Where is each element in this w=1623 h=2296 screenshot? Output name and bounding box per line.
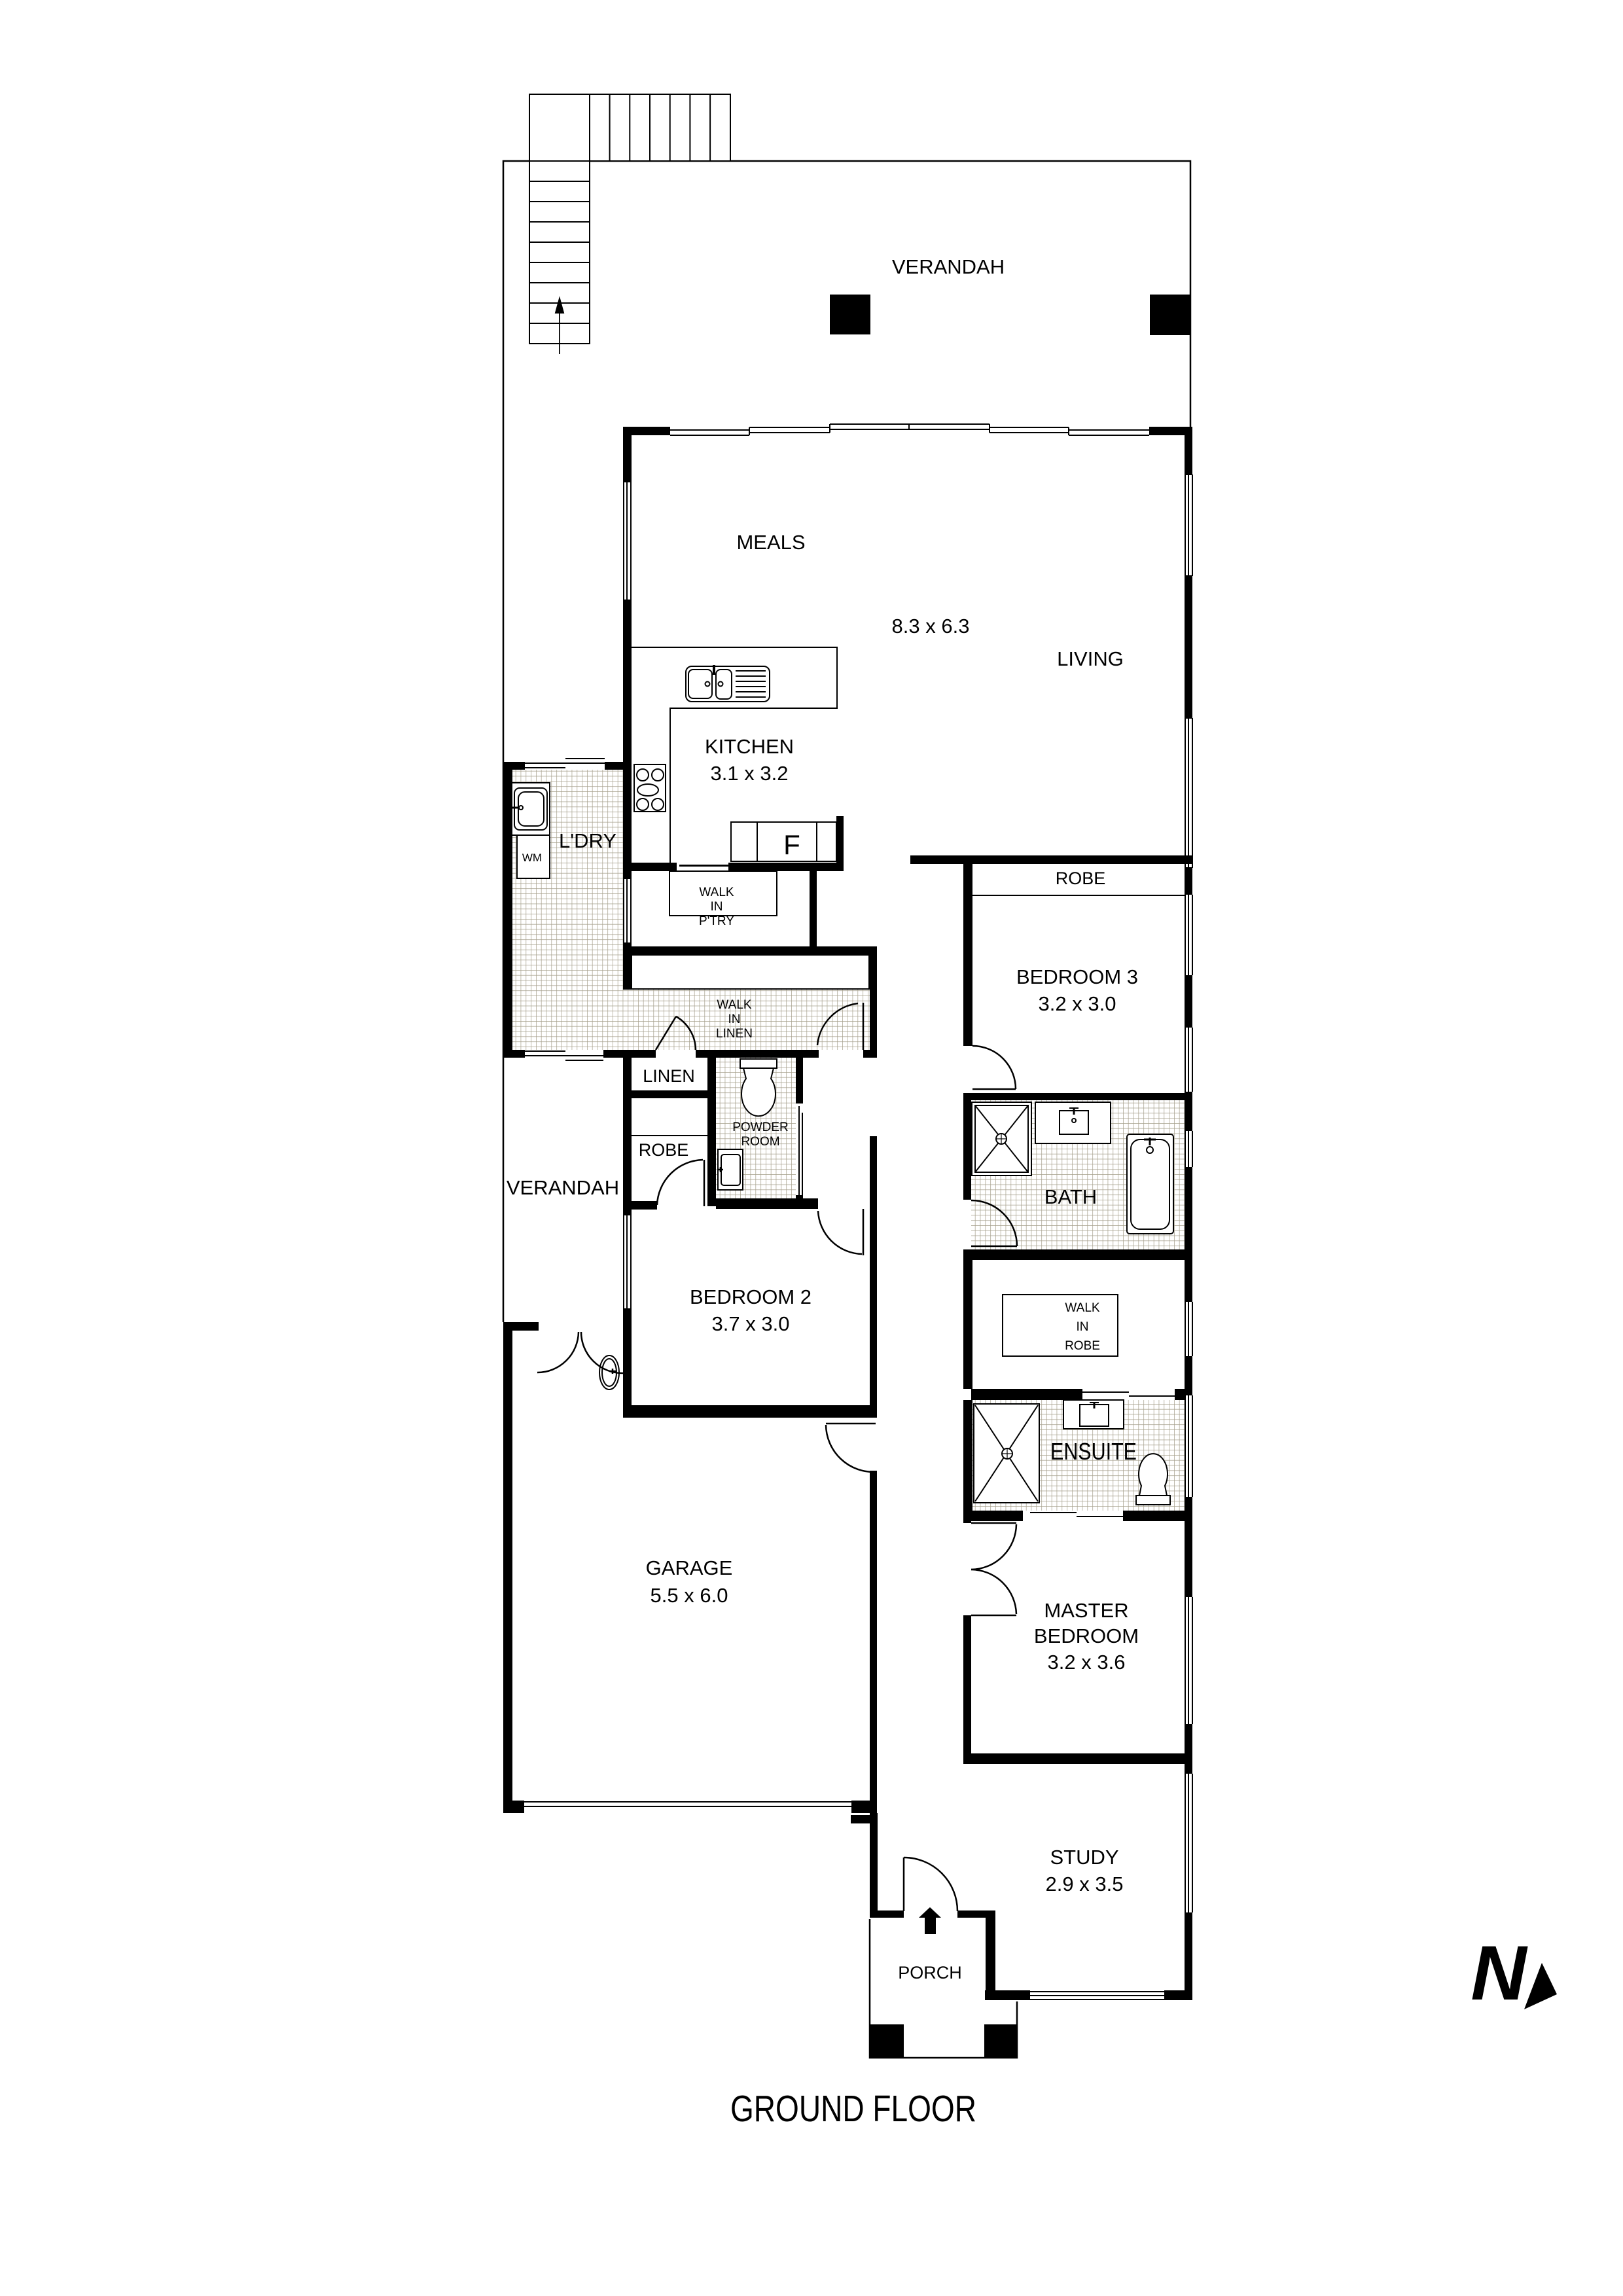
svg-text:VERANDAH: VERANDAH: [892, 255, 1005, 278]
svg-text:3.7 x 3.0: 3.7 x 3.0: [712, 1312, 790, 1335]
svg-text:WALK: WALK: [1065, 1301, 1099, 1315]
svg-text:IN: IN: [728, 1013, 741, 1026]
svg-text:ROBE: ROBE: [1065, 1339, 1100, 1353]
svg-text:PORCH: PORCH: [898, 1963, 962, 1982]
svg-text:IN: IN: [1077, 1320, 1089, 1334]
svg-text:POWDER: POWDER: [732, 1121, 789, 1134]
svg-text:BEDROOM 2: BEDROOM 2: [690, 1285, 811, 1308]
svg-text:5.5 x 6.0: 5.5 x 6.0: [651, 1584, 728, 1607]
svg-text:LINEN: LINEN: [643, 1066, 695, 1086]
svg-text:BEDROOM: BEDROOM: [1034, 1624, 1139, 1647]
svg-text:GROUND FLOOR: GROUND FLOOR: [730, 2088, 976, 2130]
svg-text:KITCHEN: KITCHEN: [705, 735, 794, 758]
svg-text:WALK: WALK: [699, 886, 734, 899]
svg-text:LINEN: LINEN: [716, 1027, 753, 1041]
svg-text:F: F: [783, 829, 800, 860]
svg-text:VERANDAH: VERANDAH: [507, 1176, 619, 1199]
svg-text:8.3 x 6.3: 8.3 x 6.3: [892, 615, 970, 637]
svg-text:STUDY: STUDY: [1050, 1846, 1118, 1869]
svg-text:ROOM: ROOM: [741, 1135, 779, 1149]
svg-text:BATH: BATH: [1044, 1185, 1097, 1208]
svg-text:WALK: WALK: [717, 998, 751, 1012]
svg-text:ROBE: ROBE: [639, 1140, 689, 1160]
svg-text:MASTER: MASTER: [1044, 1599, 1128, 1622]
svg-text:L'DRY: L'DRY: [559, 829, 616, 852]
svg-text:LIVING: LIVING: [1057, 647, 1124, 670]
svg-text:GARAGE: GARAGE: [646, 1556, 733, 1579]
svg-text:BEDROOM 3: BEDROOM 3: [1016, 965, 1138, 988]
svg-text:3.2 x 3.6: 3.2 x 3.6: [1048, 1651, 1126, 1674]
svg-text:N: N: [1471, 1930, 1528, 2017]
svg-text:3.2 x 3.0: 3.2 x 3.0: [1039, 992, 1116, 1015]
svg-text:WM: WM: [522, 852, 542, 864]
svg-text:2.9 x 3.5: 2.9 x 3.5: [1046, 1873, 1124, 1895]
svg-text:3.1 x 3.2: 3.1 x 3.2: [711, 762, 789, 785]
svg-text:ENSUITE: ENSUITE: [1050, 1438, 1137, 1465]
svg-text:ROBE: ROBE: [1056, 869, 1106, 888]
svg-text:MEALS: MEALS: [736, 531, 805, 554]
svg-text:IN: IN: [711, 900, 723, 914]
svg-text:P'TRY: P'TRY: [699, 914, 734, 928]
